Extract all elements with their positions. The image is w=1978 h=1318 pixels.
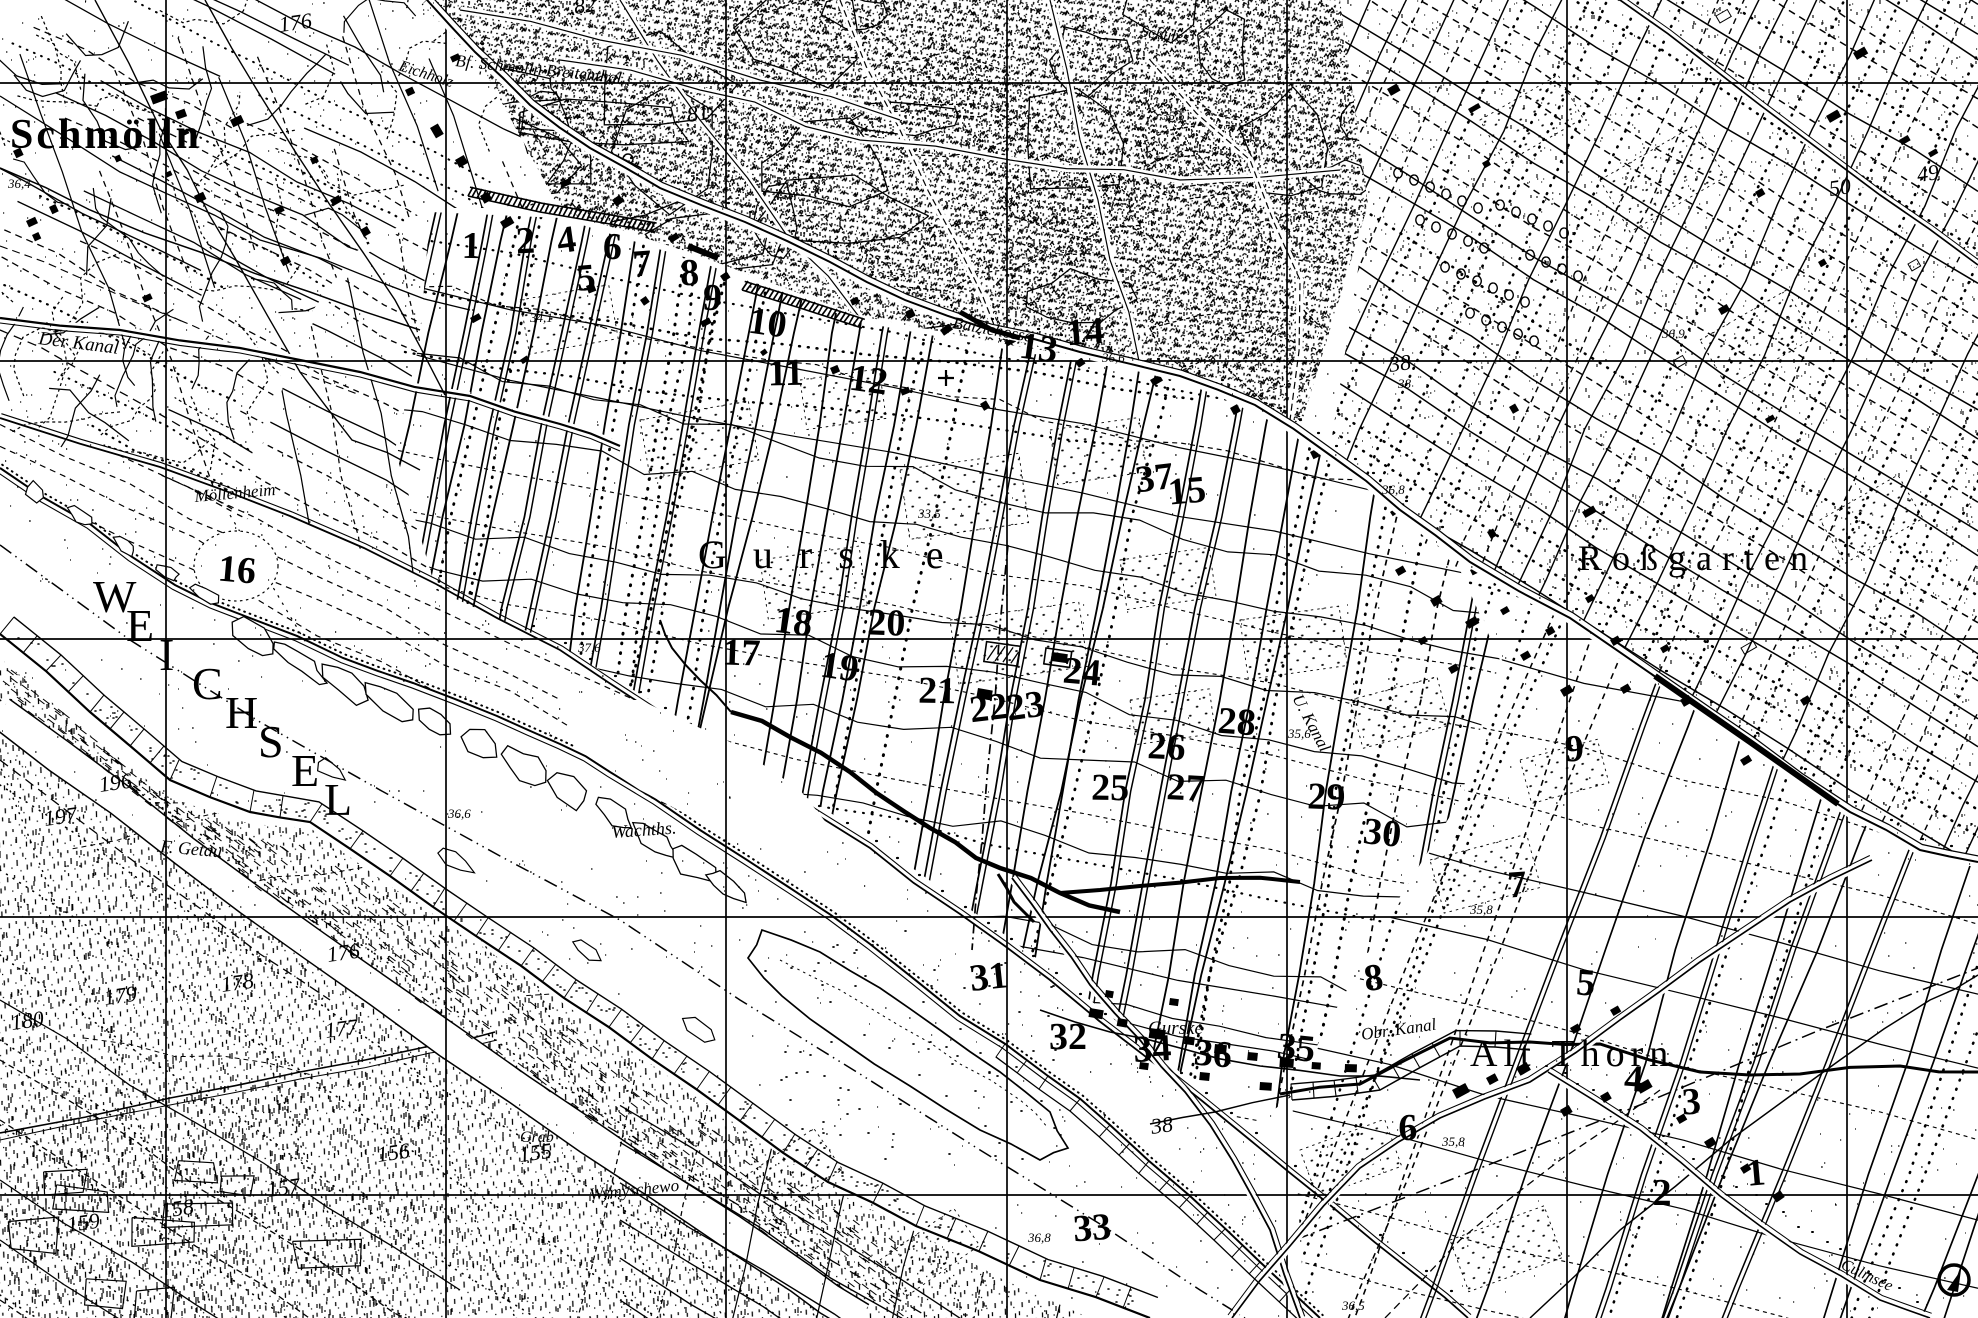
svg-text:35,8: 35,8 [1469,902,1493,917]
svg-text:36,8: 36,8 [1381,482,1405,497]
svg-text:32: 32 [1049,1016,1087,1058]
svg-text:24: 24 [1061,649,1103,694]
svg-text:20: 20 [867,601,906,644]
svg-text:16: 16 [216,547,258,592]
svg-text:S: S [258,716,284,767]
svg-text:38: 38 [1148,1111,1174,1139]
svg-text:14: 14 [1065,310,1106,355]
svg-text:3: 3 [1681,1081,1702,1124]
svg-text:7: 7 [631,242,653,285]
svg-text:196: 196 [97,768,133,797]
svg-text:25: 25 [1091,767,1130,810]
svg-text:159: 159 [65,1208,101,1237]
svg-text:6: 6 [602,226,622,269]
svg-text:10: 10 [746,300,789,347]
svg-text:36,5: 36,5 [1341,1298,1365,1313]
svg-text:23: 23 [1004,683,1047,730]
svg-text:11: 11 [767,352,804,395]
svg-text:17: 17 [722,631,761,674]
svg-text:29: 29 [1307,775,1346,818]
svg-text:30: 30 [1361,810,1403,856]
svg-text:82: 82 [572,0,597,19]
svg-text:179: 179 [102,981,138,1010]
svg-text:36,8: 36,8 [1027,1230,1051,1245]
svg-text:197: 197 [42,801,79,830]
svg-text:19: 19 [818,644,861,691]
svg-text:35,5: 35,5 [1161,108,1185,123]
svg-text:12: 12 [847,357,890,404]
svg-text:E: E [291,745,319,796]
svg-text:I: I [159,629,174,680]
svg-text:L: L [324,774,352,825]
svg-text:36,9: 36,9 [1661,326,1685,341]
svg-text:178: 178 [219,968,255,997]
svg-text:35,6: 35,6 [1287,726,1311,741]
svg-text:1: 1 [1745,1151,1768,1194]
svg-text:49: 49 [1915,159,1940,187]
svg-text:35,8: 35,8 [1441,1134,1465,1149]
svg-text:33,5: 33,5 [917,506,941,521]
svg-text:6: 6 [1398,1107,1418,1149]
svg-text:158: 158 [159,1194,195,1223]
svg-text:37,6: 37,6 [577,640,601,655]
svg-text:34: 34 [1132,1027,1172,1071]
svg-text:156: 156 [375,1138,411,1167]
svg-text:36: 36 [1192,1031,1234,1076]
svg-text:38: 38 [1397,376,1412,391]
svg-text:E: E [126,600,154,651]
svg-text:2: 2 [515,220,536,263]
svg-text:1: 1 [461,225,481,267]
svg-text:28: 28 [1216,700,1257,745]
svg-text:4: 4 [1623,1057,1645,1100]
svg-text:36,4: 36,4 [7,176,31,191]
svg-text:177: 177 [323,1013,360,1042]
svg-text:50: 50 [1827,173,1852,201]
svg-text:155: 155 [517,1138,553,1167]
svg-text:Schmölln: Schmölln [10,112,202,158]
svg-text:26: 26 [1147,725,1187,769]
svg-text:31: 31 [968,954,1010,1000]
svg-text:9: 9 [1564,728,1585,771]
svg-text:33: 33 [1072,1206,1113,1251]
svg-text:7: 7 [1506,863,1528,906]
svg-text:38: 38 [1386,349,1412,377]
svg-text:9: 9 [702,277,722,320]
svg-text:Roßgarten: Roßgarten [1578,538,1818,578]
svg-text:157: 157 [265,1172,302,1201]
svg-text:36,6: 36,6 [447,806,471,821]
svg-text:36,6: 36,6 [1101,350,1125,365]
svg-text:35: 35 [1275,1025,1317,1071]
svg-text:13: 13 [1017,325,1060,372]
svg-text:Gurske: Gurske [698,532,970,577]
svg-text:H: H [225,687,258,738]
svg-text:18: 18 [772,599,815,645]
svg-text:5: 5 [575,256,598,299]
svg-text:21: 21 [918,670,957,713]
svg-text:C: C [192,658,223,709]
svg-text:2: 2 [1653,1172,1672,1214]
svg-text:8: 8 [679,252,699,295]
svg-text:15: 15 [1166,468,1208,513]
svg-text:34,1: 34,1 [529,310,553,325]
svg-text:180: 180 [9,1006,45,1035]
svg-text:27: 27 [1166,766,1206,810]
svg-text:5: 5 [1575,961,1597,1004]
svg-text:176: 176 [325,938,361,967]
svg-text:81: 81 [685,99,710,127]
